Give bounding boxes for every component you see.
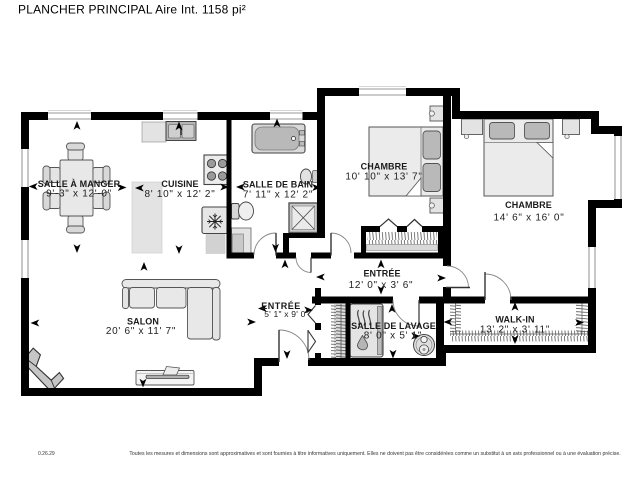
svg-text:10' 10" x 13' 7": 10' 10" x 13' 7" bbox=[345, 172, 422, 183]
svg-text:SALLE À MANGER: SALLE À MANGER bbox=[38, 179, 121, 189]
svg-text:5' 1" x 9' 0": 5' 1" x 9' 0" bbox=[264, 309, 309, 319]
svg-text:SALLE DE LAVAGE: SALLE DE LAVAGE bbox=[351, 321, 436, 331]
svg-text:Toutes les mesures et dimensio: Toutes les mesures et dimensions sont ap… bbox=[129, 451, 620, 457]
svg-text:PLANCHER PRINCIPAL Aire Int. 1: PLANCHER PRINCIPAL Aire Int. 1158 pi² bbox=[18, 3, 246, 17]
svg-text:CHAMBRE: CHAMBRE bbox=[505, 200, 552, 210]
svg-text:CHAMBRE: CHAMBRE bbox=[361, 162, 408, 172]
svg-text:8' 10" x 12' 2": 8' 10" x 12' 2" bbox=[145, 189, 216, 200]
svg-text:7' 11" x 12' 2": 7' 11" x 12' 2" bbox=[243, 190, 313, 201]
svg-text:WALK-IN: WALK-IN bbox=[495, 315, 534, 325]
svg-text:13' 2" x 3' 11": 13' 2" x 3' 11" bbox=[480, 325, 550, 336]
svg-text:14' 6" x 16' 0": 14' 6" x 16' 0" bbox=[494, 213, 565, 224]
svg-text:9'-3" x 12'-0": 9'-3" x 12'-0" bbox=[46, 189, 112, 200]
svg-text:8' 0" x 5' 1": 8' 0" x 5' 1" bbox=[364, 331, 422, 342]
svg-text:0.26.29: 0.26.29 bbox=[38, 451, 55, 457]
svg-text:12' 0" x 3' 6": 12' 0" x 3' 6" bbox=[349, 280, 414, 291]
svg-text:ENTRÉE: ENTRÉE bbox=[363, 269, 400, 279]
svg-text:20' 6" x 11' 7": 20' 6" x 11' 7" bbox=[106, 326, 176, 337]
svg-text:SALON: SALON bbox=[127, 317, 159, 327]
svg-text:SALLE DE BAIN: SALLE DE BAIN bbox=[243, 180, 313, 190]
svg-text:CUISINE: CUISINE bbox=[161, 179, 198, 189]
